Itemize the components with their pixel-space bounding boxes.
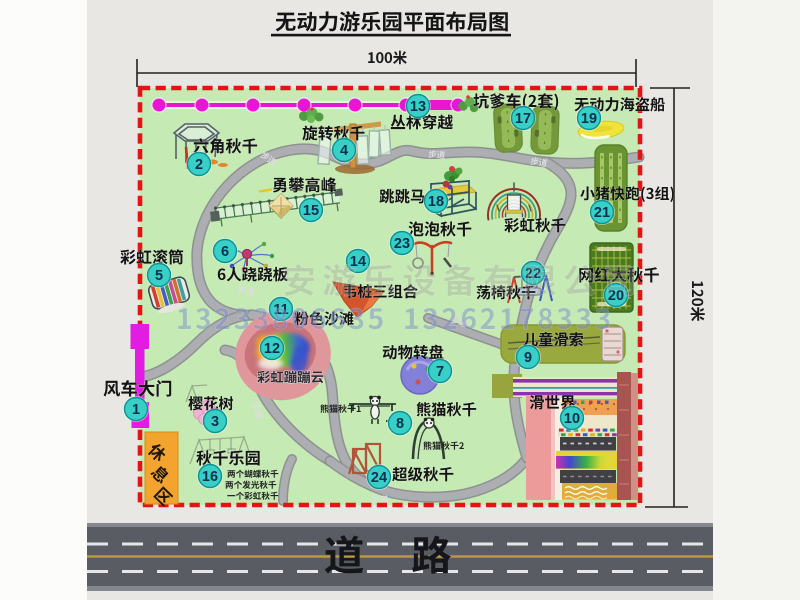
svg-text:13: 13 — [410, 99, 426, 115]
svg-text:15: 15 — [303, 203, 319, 219]
svg-text:3: 3 — [211, 414, 219, 430]
svg-text:1: 1 — [132, 402, 140, 418]
svg-text:10: 10 — [564, 411, 580, 427]
svg-text:24: 24 — [371, 470, 387, 486]
svg-text:6: 6 — [221, 244, 229, 260]
svg-text:4: 4 — [340, 143, 348, 159]
svg-text:23: 23 — [394, 236, 410, 252]
svg-text:19: 19 — [581, 111, 597, 127]
svg-text:14: 14 — [350, 254, 366, 270]
svg-text:5: 5 — [155, 268, 163, 284]
svg-text:2: 2 — [195, 157, 203, 173]
svg-text:17: 17 — [515, 111, 531, 127]
svg-text:8: 8 — [396, 416, 404, 432]
svg-text:18: 18 — [428, 194, 444, 210]
svg-text:7: 7 — [436, 364, 444, 380]
svg-text:9: 9 — [524, 350, 532, 366]
svg-text:16: 16 — [202, 469, 218, 485]
svg-text:21: 21 — [594, 205, 610, 221]
svg-text:12: 12 — [264, 341, 280, 357]
